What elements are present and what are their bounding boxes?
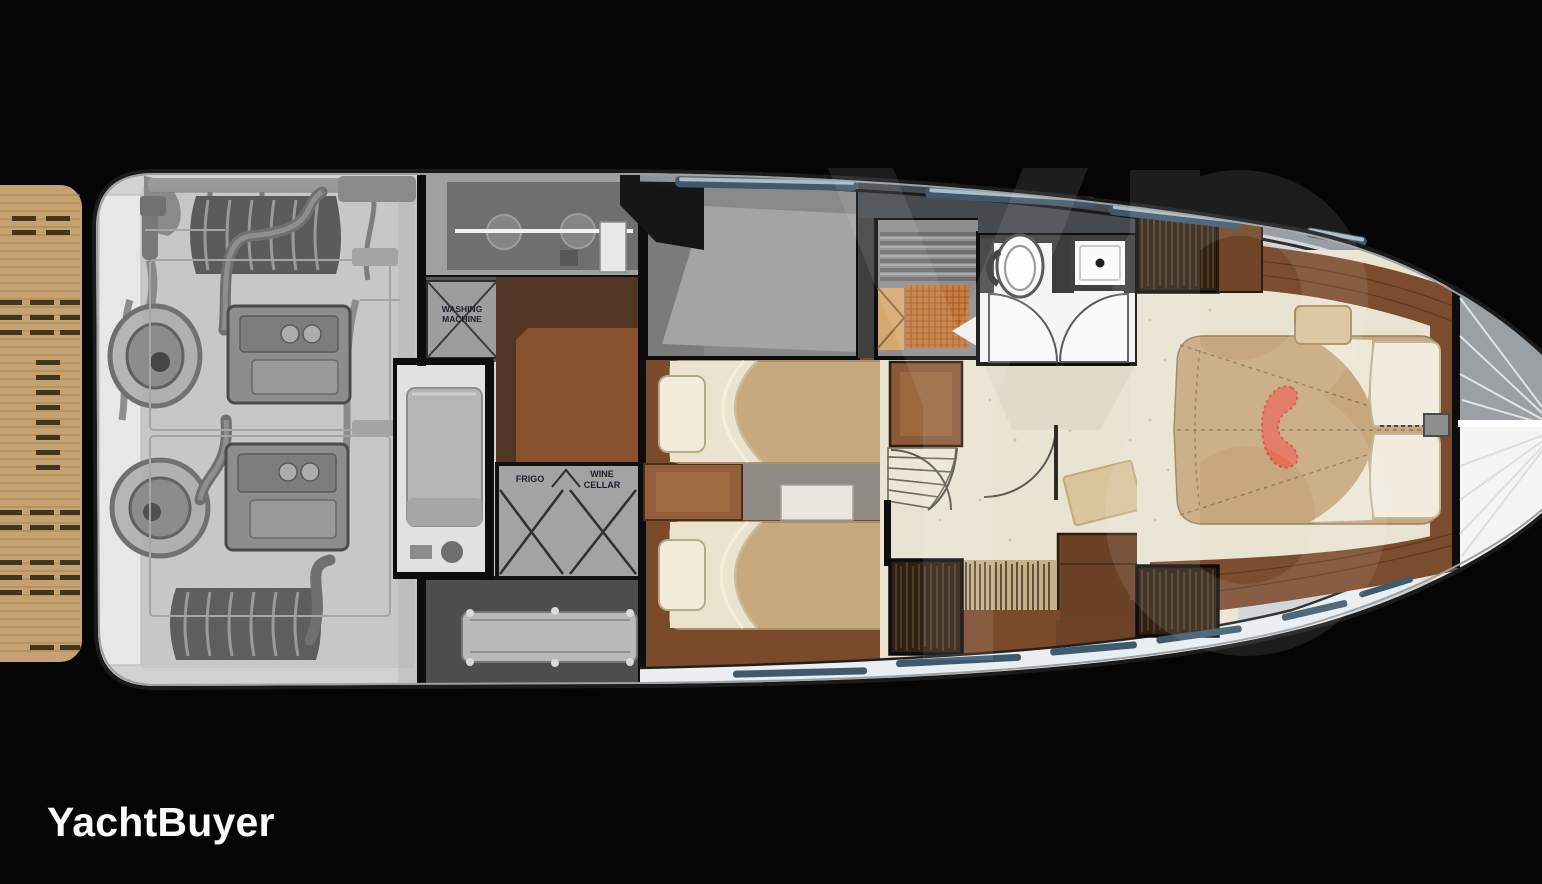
svg-text:WINE: WINE (590, 469, 614, 479)
svg-text:WASHING: WASHING (442, 304, 483, 314)
svg-text:FRIGO: FRIGO (516, 474, 545, 484)
svg-text:CELLAR: CELLAR (584, 480, 621, 490)
svg-text:MACHINE: MACHINE (442, 314, 482, 324)
